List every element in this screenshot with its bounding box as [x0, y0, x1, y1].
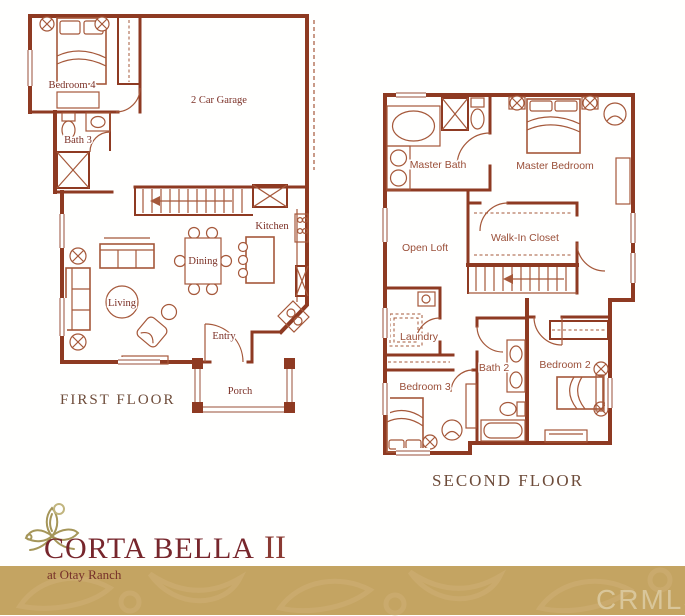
vanity-sinks-symbol — [387, 146, 410, 190]
room-label-kitchen: Kitchen — [255, 221, 289, 232]
shower-symbol — [57, 152, 89, 188]
ceiling-fan-icon — [594, 362, 608, 376]
ceiling-fan-icon — [95, 17, 109, 31]
island-symbol — [239, 237, 275, 283]
toilet-symbol — [500, 402, 525, 416]
room-label-bedroom4: Bedroom 4 — [49, 80, 97, 91]
room-label-bath3: Bath 3 — [64, 135, 92, 146]
room-label-living: Living — [108, 298, 137, 309]
community-logotype: CORTA BELLAII — [44, 530, 286, 567]
dresser-symbol — [466, 384, 476, 428]
shower-symbol — [442, 98, 468, 130]
side-table-symbol — [162, 305, 177, 320]
tub-symbol — [387, 106, 440, 146]
room-label-entry: Entry — [212, 331, 236, 342]
first-floor-title: FIRST FLOOR — [60, 392, 176, 408]
community-name: CORTA BELLA — [44, 532, 255, 565]
room-label-walk-in-closet: Walk-In Closet — [491, 232, 559, 244]
first-floor-stairs — [135, 187, 252, 215]
sink-symbol — [86, 113, 110, 131]
room-label-dining: Dining — [188, 256, 218, 267]
room-label-bedroom3: Bedroom 3 — [399, 381, 451, 393]
master-bath-fixtures — [387, 98, 490, 190]
end-table-symbol — [70, 248, 86, 264]
community-tagline: at Otay Ranch — [47, 567, 121, 583]
end-table-symbol — [70, 334, 86, 350]
toilet-symbol — [471, 98, 484, 129]
entry-door — [205, 324, 243, 362]
ceiling-fan-icon — [423, 435, 437, 449]
door-arc — [90, 132, 110, 152]
bath2-fixtures — [477, 326, 525, 441]
armchair-symbol — [135, 315, 169, 349]
room-label-open-loft: Open Loft — [402, 242, 448, 254]
bedroom2-furniture — [534, 317, 608, 442]
ceiling-fan-icon — [583, 96, 597, 110]
room-label-master-bath: Master Bath — [410, 159, 467, 171]
second-floor-plan: Master Bath Master Bedroom Open Loft Wal… — [368, 78, 678, 498]
window-seat-symbol — [545, 430, 587, 442]
room-label-bedroom2: Bedroom 2 — [539, 359, 591, 371]
room-label-laundry: Laundry — [400, 331, 439, 343]
room-label-porch: Porch — [228, 386, 253, 397]
room-label-master-bedroom: Master Bedroom — [516, 160, 594, 172]
crmls-watermark: CRMLS — [596, 584, 685, 616]
series-numeral: II — [264, 530, 286, 566]
bedroom3-furniture — [387, 362, 476, 452]
tub-symbol — [481, 420, 525, 441]
room-label-garage: 2 Car Garage — [191, 95, 247, 106]
dresser-symbol — [616, 158, 630, 204]
round-chair-symbol — [604, 103, 626, 125]
master-bedroom-furniture — [480, 96, 630, 271]
door-arc — [116, 88, 140, 112]
first-floor-plan: Bedroom 4 Bath 3 2 Car Garage Kitchen Di… — [0, 0, 350, 430]
second-floor-stairs — [468, 265, 577, 293]
door-arc — [577, 243, 605, 271]
ceiling-fan-icon — [40, 17, 54, 31]
door-arc — [451, 370, 473, 392]
second-floor-title: SECOND FLOOR — [432, 471, 584, 490]
vanity-symbol — [507, 340, 525, 392]
floorplan-sheet: Bedroom 4 Bath 3 2 Car Garage Kitchen Di… — [0, 0, 685, 615]
door-arc — [480, 203, 508, 231]
round-chair-symbol — [442, 420, 462, 440]
bath3-fixtures — [57, 113, 110, 188]
bedroom4-furniture — [40, 17, 140, 112]
ceiling-fan-icon — [510, 96, 524, 110]
kitchen-fixtures — [239, 185, 310, 332]
room-label-bath2: Bath 2 — [479, 362, 510, 374]
door-arc — [477, 326, 503, 352]
